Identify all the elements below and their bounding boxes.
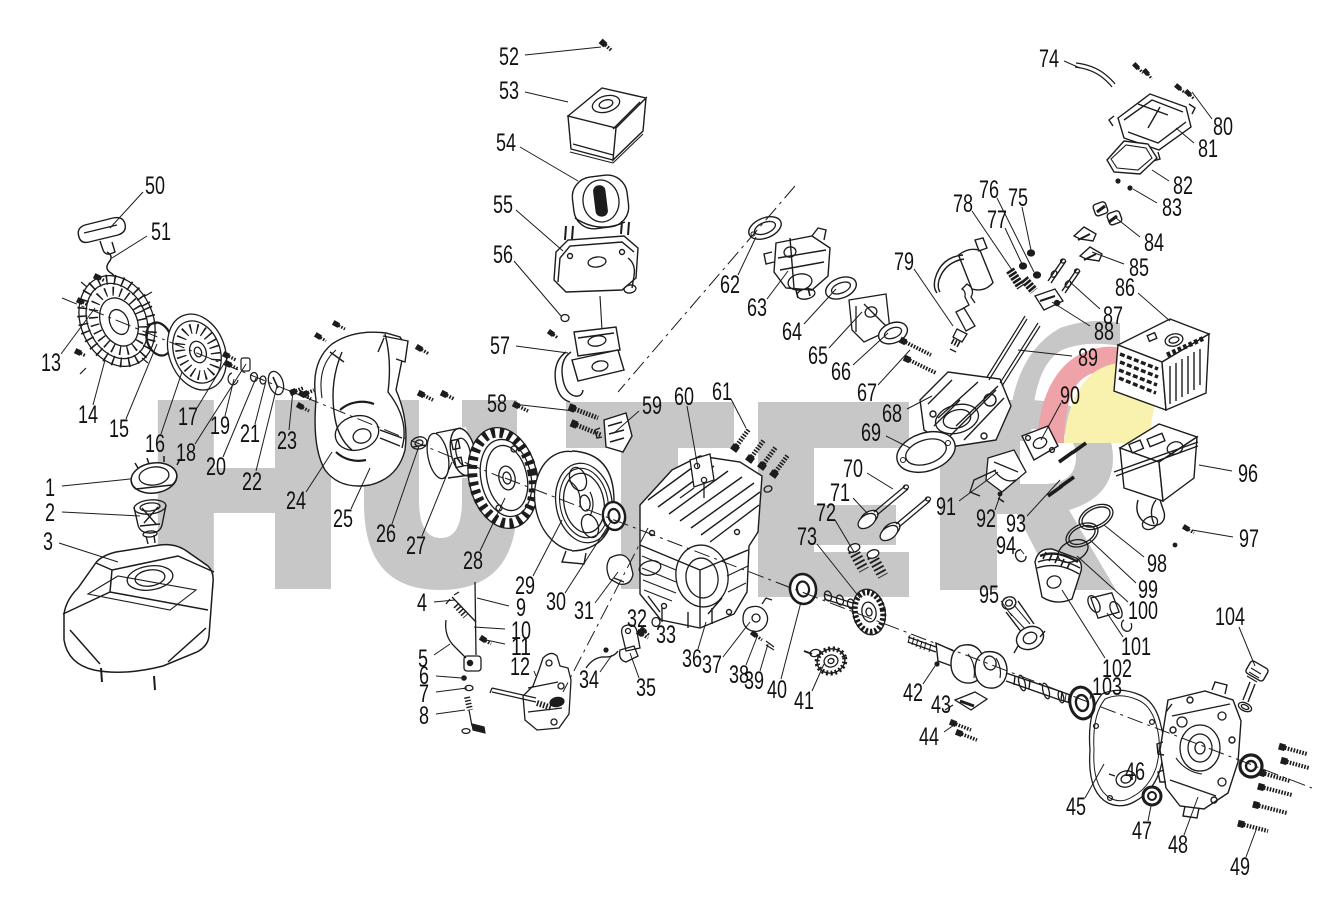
svg-text:2: 2 <box>45 499 55 527</box>
svg-text:89: 89 <box>1078 344 1098 372</box>
svg-text:57: 57 <box>490 332 510 360</box>
svg-text:46: 46 <box>1125 758 1145 786</box>
svg-text:12: 12 <box>510 653 530 681</box>
svg-text:45: 45 <box>1066 793 1086 821</box>
svg-text:56: 56 <box>493 241 513 269</box>
svg-text:98: 98 <box>1147 550 1167 578</box>
svg-text:64: 64 <box>782 318 802 346</box>
svg-text:52: 52 <box>499 43 519 71</box>
svg-text:62: 62 <box>720 271 740 299</box>
svg-text:94: 94 <box>996 532 1016 560</box>
svg-text:13: 13 <box>41 349 61 377</box>
svg-text:53: 53 <box>499 77 519 105</box>
svg-text:91: 91 <box>936 493 956 521</box>
svg-text:47: 47 <box>1132 817 1152 845</box>
svg-text:88: 88 <box>1094 318 1114 346</box>
svg-text:30: 30 <box>546 588 566 616</box>
svg-text:65: 65 <box>808 342 828 370</box>
svg-text:50: 50 <box>145 172 165 200</box>
svg-text:104: 104 <box>1215 603 1245 631</box>
svg-text:37: 37 <box>702 651 722 679</box>
svg-text:77: 77 <box>987 206 1007 234</box>
svg-text:25: 25 <box>333 505 353 533</box>
svg-text:41: 41 <box>794 687 814 715</box>
svg-text:81: 81 <box>1198 135 1218 163</box>
svg-text:39: 39 <box>744 667 764 695</box>
svg-text:95: 95 <box>979 581 999 609</box>
svg-text:92: 92 <box>976 505 996 533</box>
svg-text:42: 42 <box>903 679 923 707</box>
svg-text:67: 67 <box>857 379 877 407</box>
svg-text:27: 27 <box>406 532 426 560</box>
svg-text:28: 28 <box>463 547 483 575</box>
svg-text:23: 23 <box>277 427 297 455</box>
svg-text:96: 96 <box>1238 460 1258 488</box>
svg-text:74: 74 <box>1039 45 1059 73</box>
svg-text:72: 72 <box>816 499 836 527</box>
svg-text:73: 73 <box>797 523 817 551</box>
svg-text:69: 69 <box>861 419 881 447</box>
svg-text:40: 40 <box>767 676 787 704</box>
svg-text:48: 48 <box>1168 831 1188 859</box>
svg-text:3: 3 <box>43 528 53 556</box>
svg-text:18: 18 <box>176 439 196 467</box>
svg-text:100: 100 <box>1128 597 1158 625</box>
svg-text:32: 32 <box>627 605 647 633</box>
svg-text:24: 24 <box>286 487 306 515</box>
svg-text:97: 97 <box>1239 525 1259 553</box>
svg-text:83: 83 <box>1162 194 1182 222</box>
svg-text:4: 4 <box>417 589 427 617</box>
svg-text:68: 68 <box>882 400 902 428</box>
svg-text:63: 63 <box>747 294 767 322</box>
svg-text:78: 78 <box>953 190 973 218</box>
svg-text:54: 54 <box>496 129 516 157</box>
svg-text:43: 43 <box>931 691 951 719</box>
svg-text:26: 26 <box>376 520 396 548</box>
svg-text:14: 14 <box>78 401 98 429</box>
svg-text:44: 44 <box>919 723 939 751</box>
svg-text:75: 75 <box>1008 184 1028 212</box>
svg-text:20: 20 <box>206 453 226 481</box>
svg-text:79: 79 <box>894 248 914 276</box>
svg-text:61: 61 <box>712 378 732 406</box>
svg-text:15: 15 <box>109 415 129 443</box>
svg-text:66: 66 <box>831 358 851 386</box>
svg-text:58: 58 <box>487 390 507 418</box>
svg-text:76: 76 <box>979 176 999 204</box>
svg-text:8: 8 <box>419 702 429 730</box>
svg-text:34: 34 <box>579 666 599 694</box>
svg-text:103: 103 <box>1092 673 1122 701</box>
svg-text:33: 33 <box>656 621 676 649</box>
svg-text:29: 29 <box>515 572 535 600</box>
svg-text:21: 21 <box>240 420 260 448</box>
svg-text:59: 59 <box>642 392 662 420</box>
svg-text:90: 90 <box>1060 382 1080 410</box>
svg-text:17: 17 <box>178 403 198 431</box>
svg-text:49: 49 <box>1230 853 1250 881</box>
svg-text:31: 31 <box>574 597 594 625</box>
svg-text:55: 55 <box>493 191 513 219</box>
svg-text:1: 1 <box>45 474 55 502</box>
svg-text:19: 19 <box>210 412 230 440</box>
svg-text:86: 86 <box>1115 274 1135 302</box>
svg-text:35: 35 <box>636 674 656 702</box>
svg-text:22: 22 <box>242 468 262 496</box>
svg-text:84: 84 <box>1144 229 1164 257</box>
svg-text:36: 36 <box>682 645 702 673</box>
svg-text:16: 16 <box>145 430 165 458</box>
svg-text:51: 51 <box>151 218 171 246</box>
svg-text:60: 60 <box>674 383 694 411</box>
